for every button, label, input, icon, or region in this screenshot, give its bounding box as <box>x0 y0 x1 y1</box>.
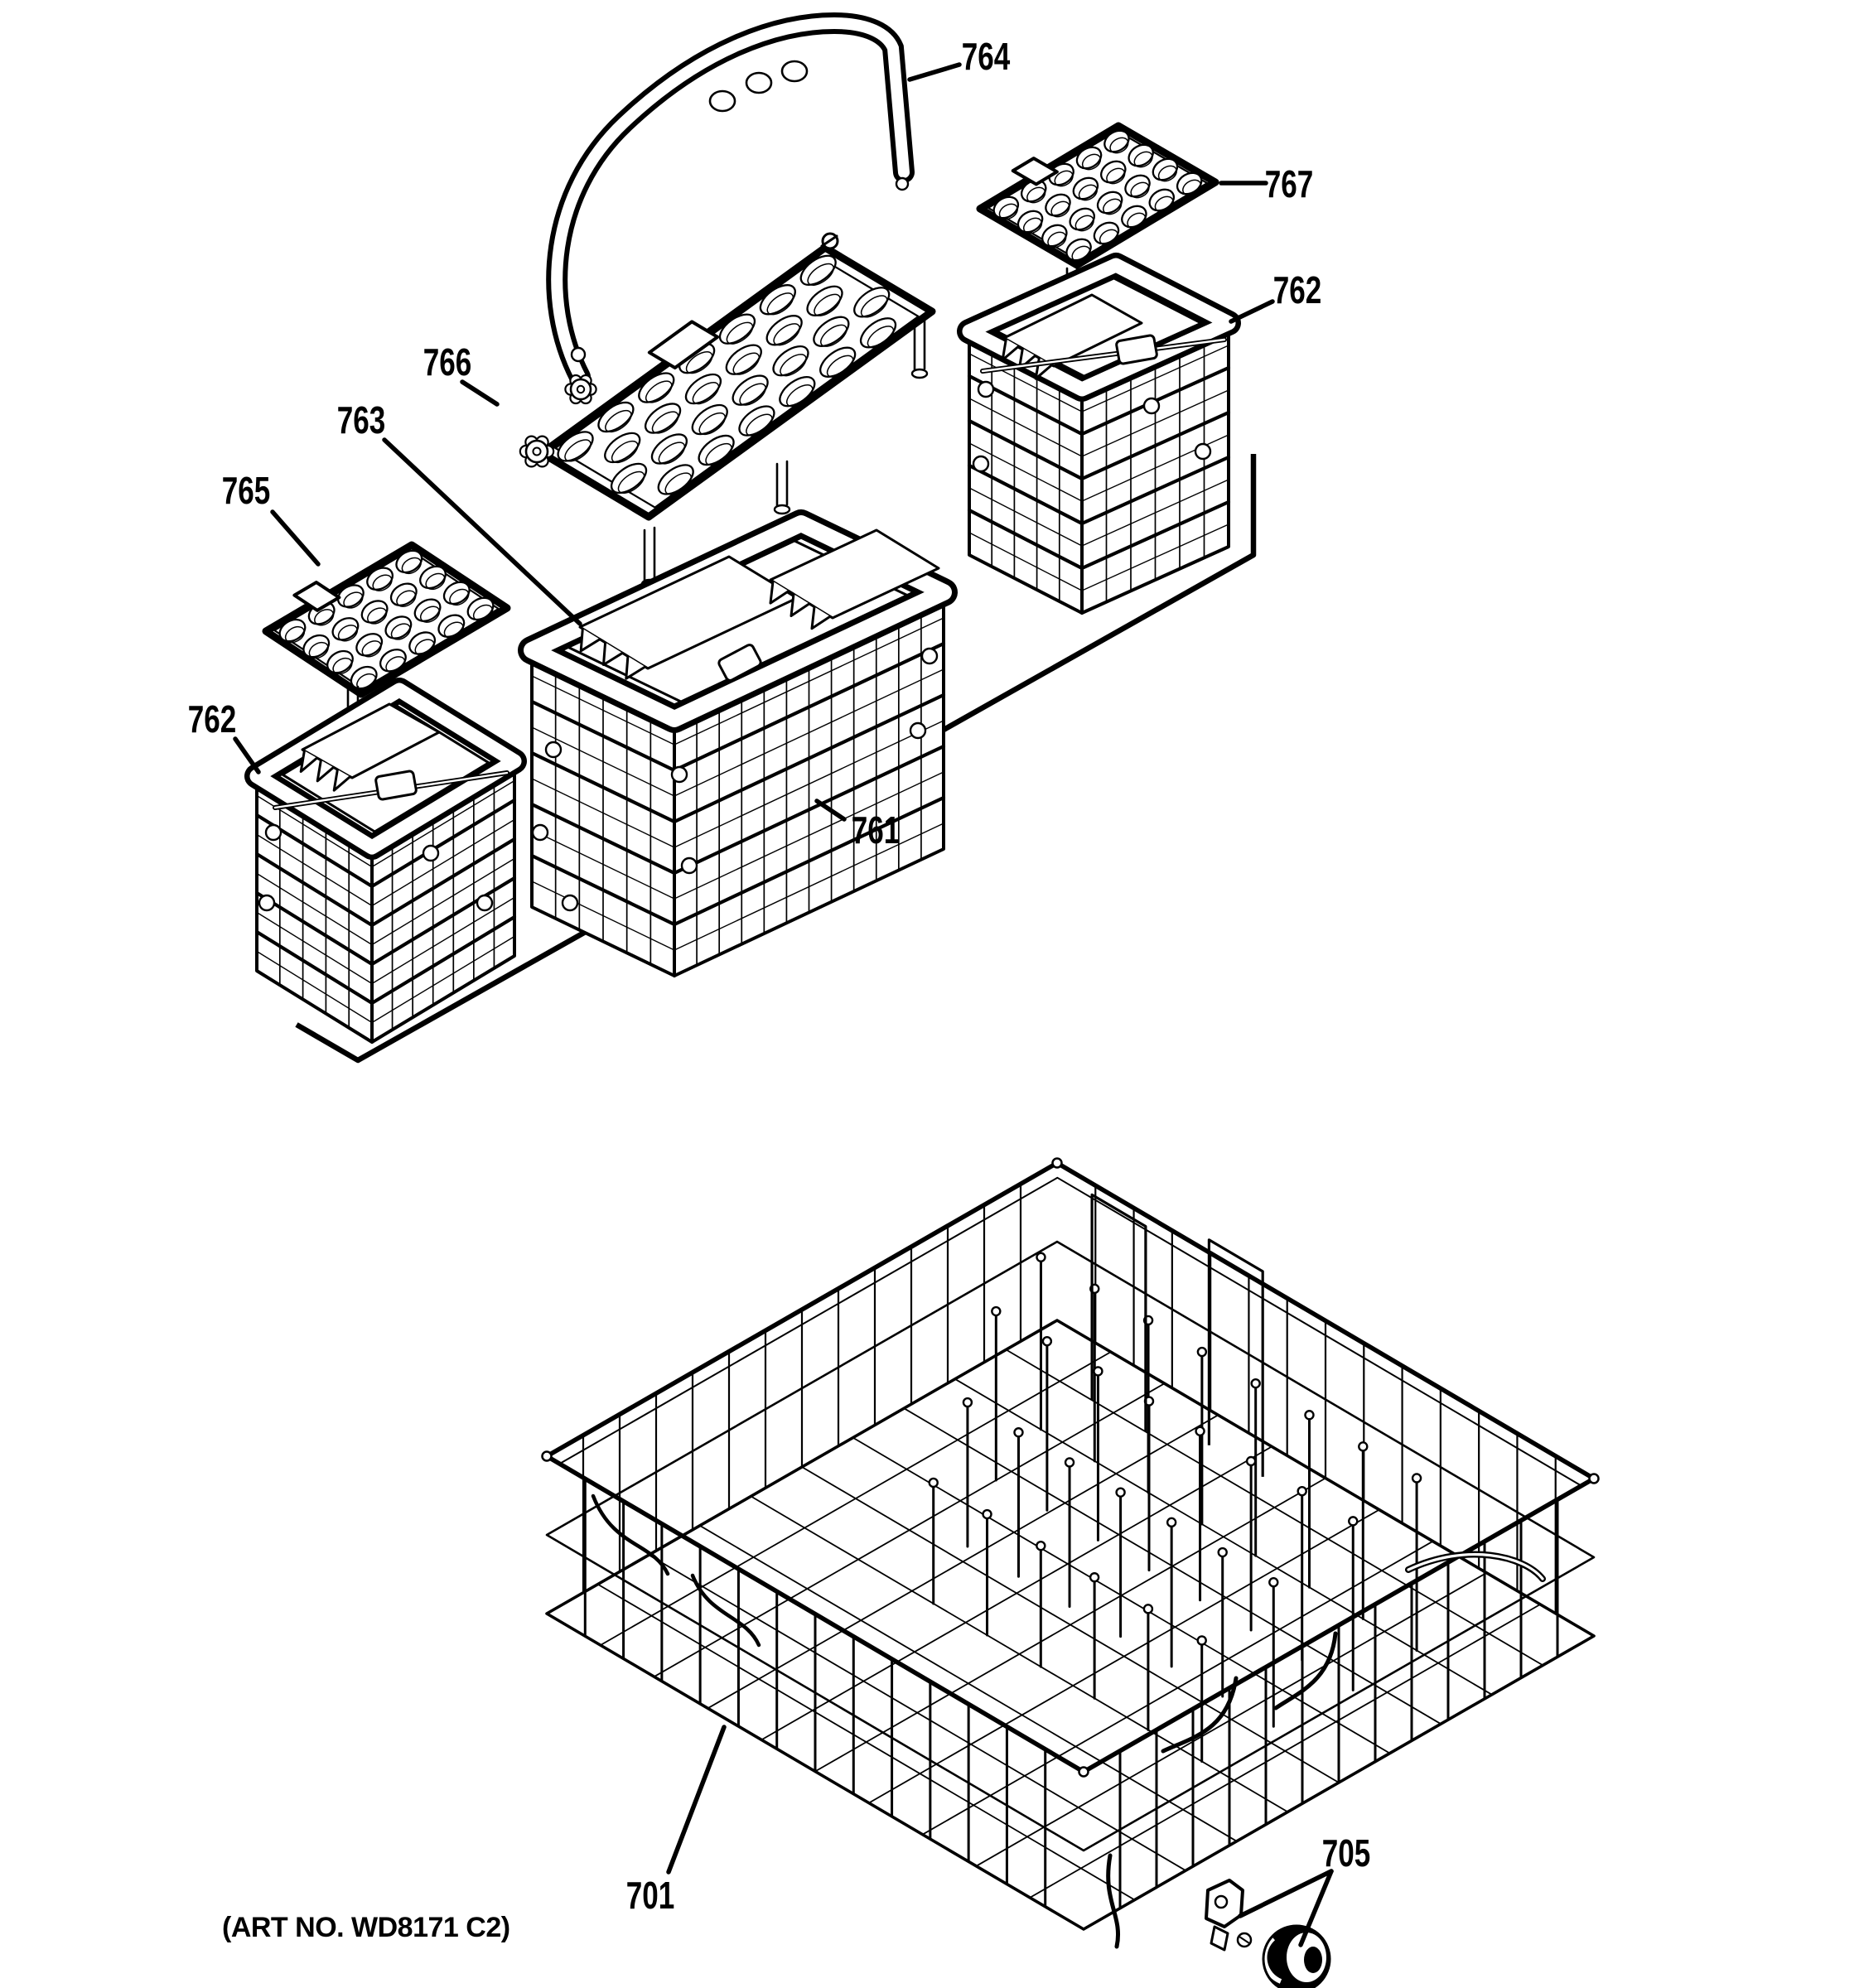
callout-label-762-left: 762 <box>188 697 237 741</box>
leader-line-765 <box>273 512 318 564</box>
callout-label-761: 761 <box>852 808 901 852</box>
callout-label-705: 705 <box>1322 1831 1371 1875</box>
leader-line-762-right <box>1231 302 1272 321</box>
parts-diagram-canvas: 764767762766763765762761701705 <box>0 0 1864 1988</box>
callout-label-767: 767 <box>1265 162 1314 205</box>
callout-764: 764 <box>910 35 1011 80</box>
leader-line-762-left <box>235 739 258 772</box>
callout-label-764: 764 <box>962 35 1011 78</box>
callout-765: 765 <box>222 469 318 564</box>
lower-rack-701 <box>543 1159 1599 1947</box>
leader-line-701 <box>669 1727 724 1872</box>
roller-clip-705 <box>1206 1880 1330 1988</box>
roller-wheel-705 <box>1263 1926 1330 1988</box>
callout-label-766: 766 <box>423 340 472 384</box>
callout-766: 766 <box>423 340 497 404</box>
parts-diagram-page: 764767762766763765762761701705 (ART NO. … <box>0 0 1864 1988</box>
callout-767: 767 <box>1221 162 1313 205</box>
leader-line-764 <box>910 65 959 80</box>
callout-762-right: 762 <box>1231 268 1321 321</box>
basket-762-left <box>257 690 514 1042</box>
callout-label-701: 701 <box>626 1874 675 1917</box>
leader-line-766 <box>462 382 497 404</box>
basket-762-right <box>969 265 1229 613</box>
callout-label-763: 763 <box>337 398 386 442</box>
callout-label-765: 765 <box>222 469 271 512</box>
callout-701: 701 <box>626 1727 724 1917</box>
basket-761-center <box>532 524 944 976</box>
callout-705: 705 <box>1240 1831 1370 1945</box>
callout-762-left: 762 <box>188 697 258 772</box>
callout-label-762-right: 762 <box>1273 268 1322 311</box>
art-number-text: (ART NO. WD8171 C2) <box>222 1912 510 1944</box>
